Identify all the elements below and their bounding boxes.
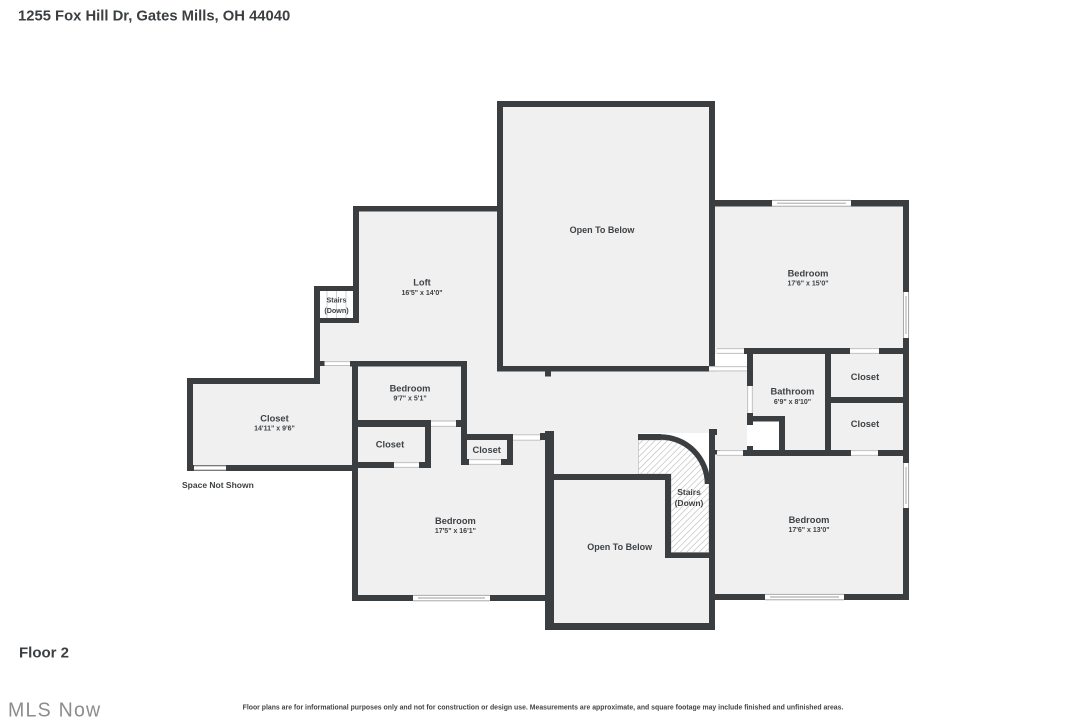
svg-text:14'11" x 9'6": 14'11" x 9'6" bbox=[254, 426, 295, 433]
svg-text:Closet: Closet bbox=[376, 440, 404, 450]
svg-text:Bedroom: Bedroom bbox=[435, 516, 476, 526]
svg-text:(Down): (Down) bbox=[324, 306, 349, 315]
svg-text:17'6" x 13'0": 17'6" x 13'0" bbox=[788, 527, 829, 534]
svg-text:Open To Below: Open To Below bbox=[587, 542, 653, 552]
svg-text:16'5" x 14'0": 16'5" x 14'0" bbox=[401, 290, 442, 297]
svg-text:6'9" x 8'10": 6'9" x 8'10" bbox=[774, 399, 811, 406]
svg-text:Stairs: Stairs bbox=[327, 296, 347, 305]
svg-text:Closet: Closet bbox=[851, 372, 879, 382]
svg-text:Open To Below: Open To Below bbox=[570, 225, 636, 235]
svg-text:Loft: Loft bbox=[413, 278, 431, 288]
svg-text:Bedroom: Bedroom bbox=[788, 269, 829, 279]
svg-text:Closet: Closet bbox=[851, 419, 879, 429]
svg-text:Bathroom: Bathroom bbox=[771, 387, 815, 397]
svg-text:9'7" x 5'1": 9'7" x 5'1" bbox=[393, 396, 426, 403]
svg-text:Closet: Closet bbox=[472, 445, 500, 455]
svg-text:Bedroom: Bedroom bbox=[390, 384, 431, 394]
svg-text:Space Not Shown: Space Not Shown bbox=[182, 480, 254, 490]
svg-text:Bedroom: Bedroom bbox=[789, 515, 830, 525]
svg-text:Closet: Closet bbox=[260, 413, 288, 423]
svg-text:(Down): (Down) bbox=[675, 498, 704, 508]
svg-text:Floor plans are for informatio: Floor plans are for informational purpos… bbox=[243, 705, 844, 712]
svg-text:MLS Now: MLS Now bbox=[8, 699, 101, 722]
svg-text:17'6" x 15'0": 17'6" x 15'0" bbox=[787, 281, 828, 288]
svg-text:Floor 2: Floor 2 bbox=[19, 645, 69, 662]
svg-text:1255 Fox Hill Dr, Gates Mills,: 1255 Fox Hill Dr, Gates Mills, OH 44040 bbox=[18, 9, 290, 25]
svg-text:Stairs: Stairs bbox=[677, 487, 701, 497]
svg-text:17'5" x 16'1": 17'5" x 16'1" bbox=[435, 528, 476, 535]
